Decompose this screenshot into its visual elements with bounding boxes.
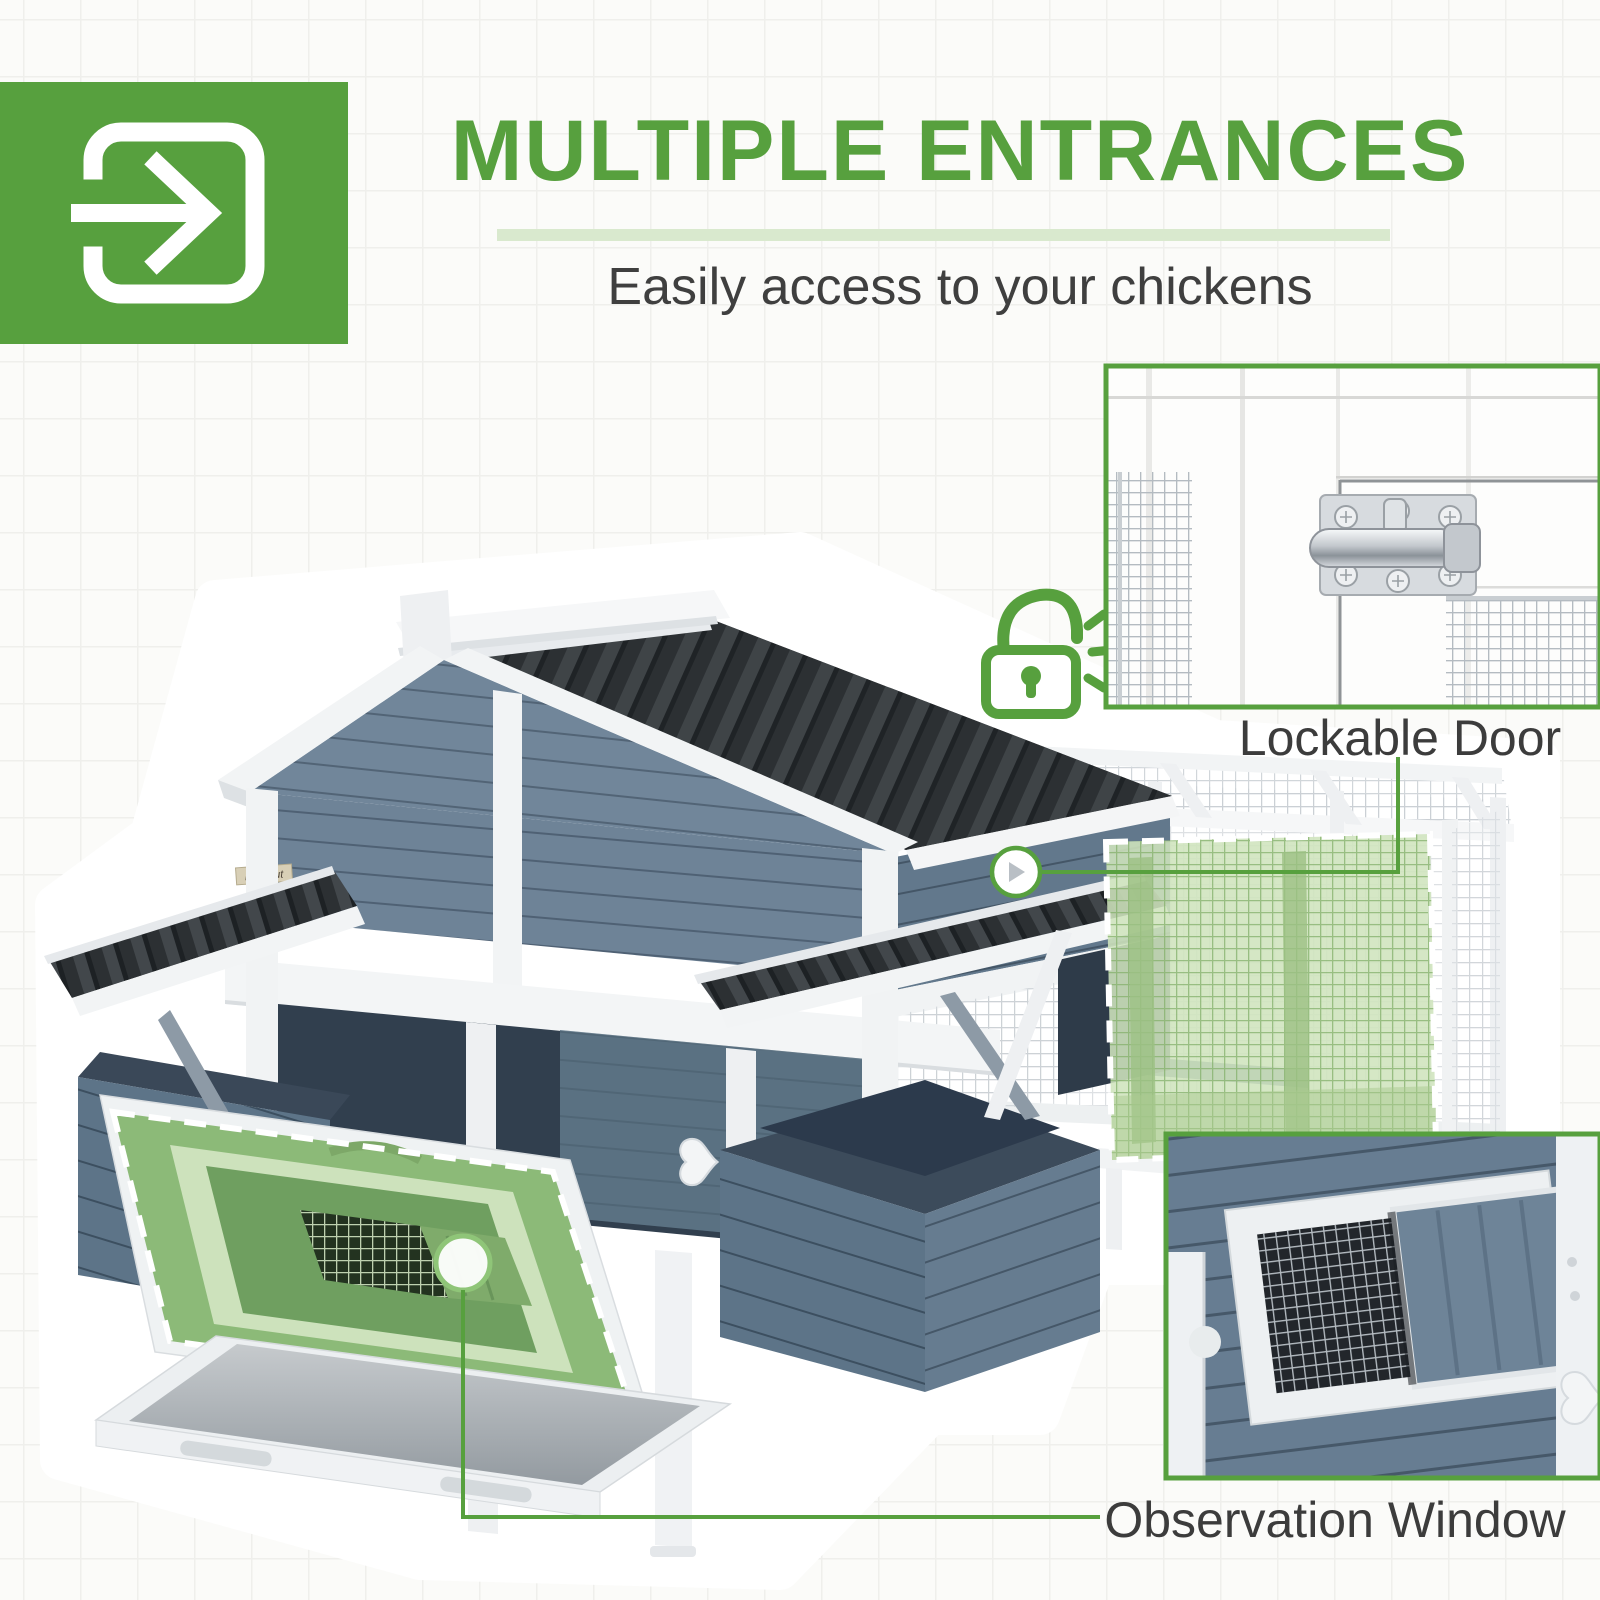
run-door-highlight: [1106, 834, 1436, 1160]
observation-window-label: Observation Window: [1080, 1492, 1590, 1548]
lockable-door-label: Lockable Door: [1180, 710, 1600, 766]
inset-lockable-door: [1106, 366, 1600, 707]
product-photo: PawHut: [0, 0, 1600, 1600]
barrel-bolt-latch: [1310, 495, 1480, 595]
window-point-marker: [436, 1236, 490, 1290]
window-slide-panel: [1387, 1189, 1581, 1387]
product-feature-card: { "colors": { "accent": "#57a03e", "acce…: [0, 0, 1600, 1600]
